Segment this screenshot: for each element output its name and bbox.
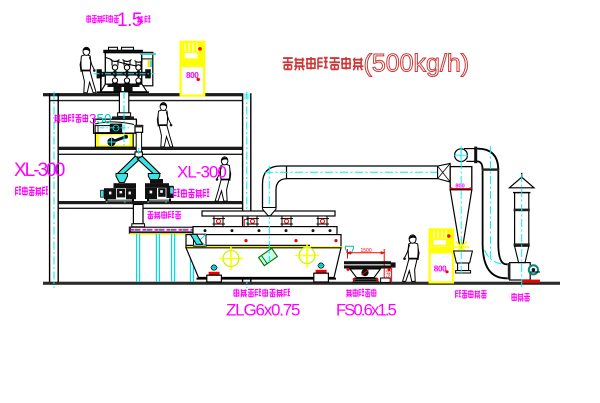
svg-text:XL-300: XL-300 [177, 163, 226, 182]
svg-text:ZLG6x0.75: ZLG6x0.75 [226, 301, 300, 320]
svg-text:FS0.6x1.5: FS0.6x1.5 [336, 302, 397, 320]
svg-text:545: 545 [386, 269, 392, 278]
svg-text:50: 50 [97, 112, 112, 127]
svg-text:(500kg/h): (500kg/h) [364, 50, 470, 78]
svg-text:1500: 1500 [361, 248, 372, 254]
svg-text:800: 800 [434, 264, 447, 273]
svg-text:3: 3 [89, 112, 97, 127]
svg-text:1.5: 1.5 [117, 10, 142, 31]
svg-text:XL-300: XL-300 [14, 160, 65, 181]
